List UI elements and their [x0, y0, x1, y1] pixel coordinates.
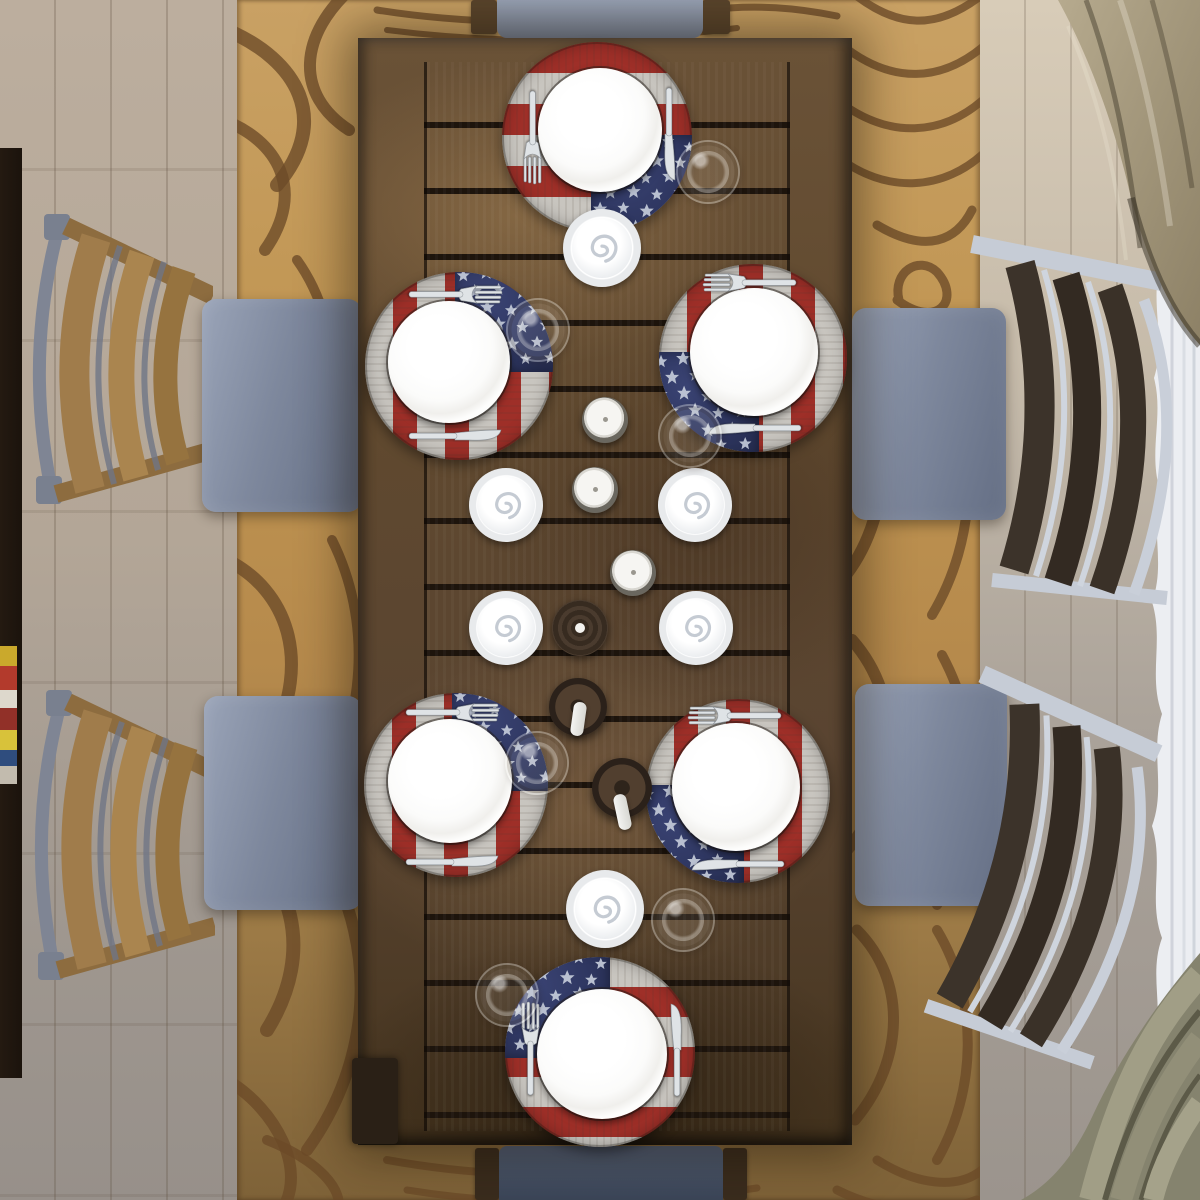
knife-icon	[404, 847, 500, 873]
candle-jar	[572, 467, 618, 513]
wine-glass	[676, 140, 740, 204]
chair-frame-corner	[471, 0, 497, 34]
swirl-candle	[667, 599, 725, 657]
wood-floor-left	[0, 0, 237, 1200]
swirl-candle	[572, 218, 632, 278]
dinner-plate	[538, 68, 662, 192]
wine-glass	[658, 404, 722, 468]
dinner-plate	[388, 301, 510, 423]
candle-holder	[552, 600, 608, 656]
fork-icon	[702, 270, 798, 296]
knife-icon	[407, 421, 503, 447]
candle-jar	[610, 550, 656, 596]
knife-icon	[690, 853, 786, 879]
fork-icon	[520, 89, 546, 185]
swirl-candle	[477, 476, 535, 534]
swirl-candle	[575, 879, 635, 939]
wine-glass	[505, 731, 569, 795]
knife-icon	[662, 1002, 688, 1098]
chair-seat	[204, 696, 362, 910]
chair-back-slats	[10, 686, 215, 986]
fork-icon	[404, 699, 500, 725]
wine-glass	[651, 888, 715, 952]
wine-glass	[506, 298, 570, 362]
wine-glass	[475, 963, 539, 1027]
chair-frame-corner	[702, 0, 730, 34]
bench-leg	[723, 1148, 747, 1200]
dining-room-scene	[0, 0, 1200, 1200]
candle-jar	[582, 397, 628, 443]
swirl-candle	[477, 599, 535, 657]
chair-seat	[202, 299, 362, 512]
chair-back-slats	[8, 210, 213, 510]
table-leg	[352, 1058, 398, 1144]
chair-seat	[497, 0, 703, 38]
fork-icon	[407, 281, 503, 307]
bench-leg	[475, 1148, 499, 1200]
fork-icon	[687, 703, 783, 729]
dinner-plate	[690, 288, 818, 416]
dinner-plate	[672, 723, 800, 851]
bench-seat	[499, 1146, 723, 1200]
swirl-candle	[666, 476, 724, 534]
dinner-plate	[388, 719, 512, 843]
dinner-plate	[537, 989, 667, 1119]
